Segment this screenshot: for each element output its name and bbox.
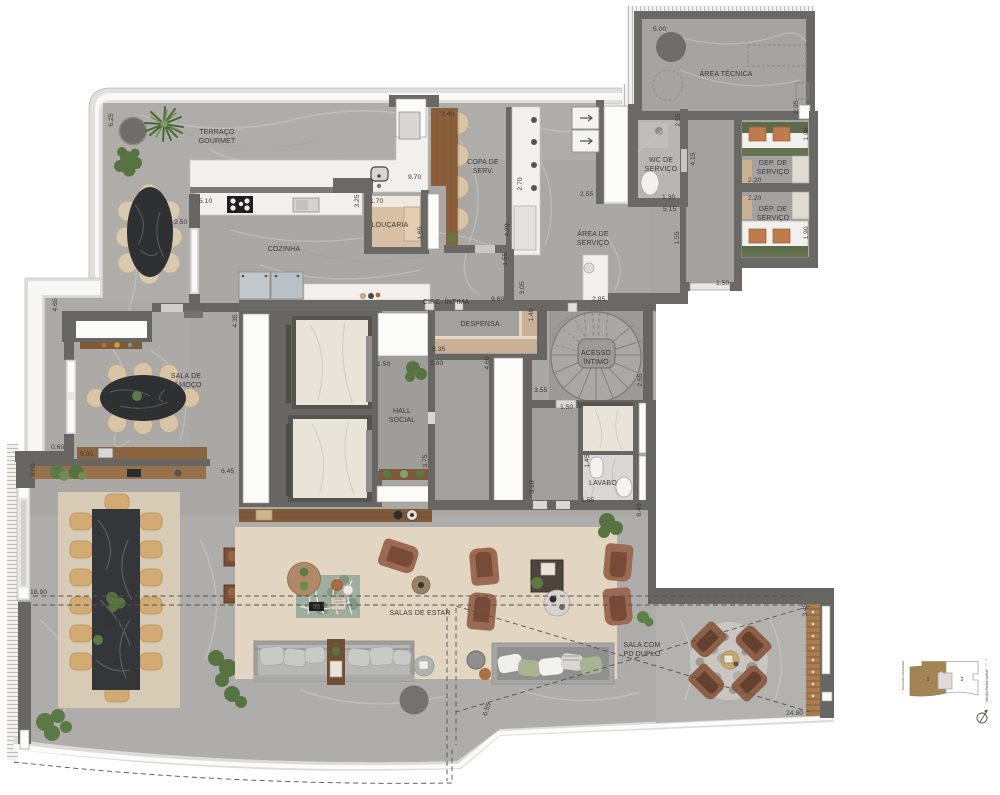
svg-text:GOURMET: GOURMET	[199, 138, 236, 145]
svg-text:3.45: 3.45	[802, 603, 809, 616]
svg-text:COZINHA: COZINHA	[268, 246, 301, 253]
svg-text:ALMOÇO: ALMOÇO	[170, 382, 202, 389]
svg-text:SALA COM: SALA COM	[624, 642, 661, 649]
svg-text:CIRC. ÍNTIMA: CIRC. ÍNTIMA	[423, 297, 470, 306]
svg-text:4.20: 4.20	[504, 223, 511, 236]
svg-text:1.65: 1.65	[417, 226, 424, 239]
svg-text:1.55: 1.55	[674, 231, 681, 244]
svg-text:3.35: 3.35	[432, 346, 445, 353]
svg-text:2.40: 2.40	[441, 111, 454, 118]
svg-text:4.35: 4.35	[232, 314, 239, 327]
svg-text:9.70: 9.70	[408, 174, 421, 181]
svg-text:2.95: 2.95	[793, 100, 800, 113]
svg-text:TERRAÇO: TERRAÇO	[199, 129, 235, 136]
svg-text:ÁREA DE: ÁREA DE	[577, 229, 609, 238]
svg-text:1.45: 1.45	[584, 454, 591, 467]
svg-text:1.40: 1.40	[528, 308, 535, 321]
svg-text:5.00: 5.00	[653, 26, 666, 33]
svg-text:1: 1	[926, 677, 929, 683]
svg-text:24.80: 24.80	[786, 710, 803, 717]
svg-text:18.90: 18.90	[30, 589, 47, 596]
svg-text:LOUÇARIA: LOUÇARIA	[372, 222, 409, 229]
svg-text:5.00: 5.00	[80, 451, 93, 458]
svg-text:2.70: 2.70	[517, 177, 524, 190]
svg-text:SERVIÇO: SERVIÇO	[645, 166, 678, 173]
svg-text:9.60: 9.60	[491, 296, 504, 303]
svg-text:4.65: 4.65	[52, 298, 59, 311]
svg-text:AVENIDA CIDADE JARDIM: AVENIDA CIDADE JARDIM	[985, 670, 989, 702]
svg-text:LAVABO: LAVABO	[589, 480, 617, 487]
svg-text:ÍNTIMO: ÍNTIMO	[583, 357, 609, 366]
svg-text:SERVIÇO: SERVIÇO	[757, 169, 790, 176]
svg-text:5.15: 5.15	[663, 206, 676, 213]
svg-text:3.75: 3.75	[422, 454, 429, 467]
svg-text:1.70: 1.70	[370, 198, 383, 205]
svg-text:4.15: 4.15	[690, 152, 697, 165]
svg-text:5.10: 5.10	[199, 198, 212, 205]
svg-text:2.20: 2.20	[748, 195, 761, 202]
svg-text:COPA DE: COPA DE	[467, 159, 499, 166]
svg-text:0.60: 0.60	[51, 444, 64, 451]
svg-text:6.25: 6.25	[108, 113, 115, 126]
svg-text:SERVIÇO: SERVIÇO	[757, 215, 790, 222]
svg-text:SERVIÇO: SERVIÇO	[577, 240, 610, 247]
svg-text:2: 2	[960, 677, 963, 683]
svg-text:DESPENSA: DESPENSA	[460, 321, 500, 328]
svg-text:2.50: 2.50	[174, 219, 187, 226]
svg-text:SALA DE: SALA DE	[171, 373, 201, 380]
svg-text:3.25: 3.25	[354, 194, 361, 207]
svg-text:DEP. DE: DEP. DE	[759, 206, 787, 213]
svg-text:9.00: 9.00	[30, 463, 37, 476]
svg-text:SOCIAL: SOCIAL	[389, 417, 416, 424]
svg-text:4.60: 4.60	[484, 356, 491, 369]
svg-text:JANTAR: JANTAR	[102, 627, 130, 634]
svg-text:SALAS DE ESTAR: SALAS DE ESTAR	[389, 610, 450, 617]
svg-text:1.55: 1.55	[502, 252, 509, 265]
svg-text:2.55: 2.55	[637, 373, 644, 386]
svg-text:2.20: 2.20	[748, 177, 761, 184]
svg-text:WC DE: WC DE	[649, 157, 673, 164]
svg-text:2.55: 2.55	[580, 191, 593, 198]
svg-text:3.05: 3.05	[519, 281, 526, 294]
svg-text:ACESSO: ACESSO	[581, 350, 611, 357]
svg-text:2.55: 2.55	[675, 113, 682, 126]
svg-text:6.40: 6.40	[636, 503, 643, 516]
svg-text:1.90: 1.90	[803, 127, 810, 140]
svg-text:ÁREA TÉCNICA: ÁREA TÉCNICA	[699, 69, 752, 78]
svg-text:3.55: 3.55	[534, 387, 547, 394]
svg-text:2.85: 2.85	[592, 296, 605, 303]
svg-text:1.80: 1.80	[430, 360, 443, 367]
svg-text:1.50: 1.50	[377, 361, 390, 368]
svg-text:1.50: 1.50	[716, 280, 729, 287]
svg-text:1.55: 1.55	[581, 497, 594, 504]
svg-text:DEP. DE: DEP. DE	[759, 160, 787, 167]
svg-text:6.45: 6.45	[221, 468, 234, 475]
svg-text:SALA DE: SALA DE	[101, 618, 131, 625]
svg-text:HALL: HALL	[393, 408, 411, 415]
svg-text:1.90: 1.90	[803, 226, 810, 239]
svg-text:3.10: 3.10	[529, 480, 536, 493]
svg-text:1.30: 1.30	[662, 194, 675, 201]
svg-text:1.50: 1.50	[560, 404, 573, 411]
svg-text:PD DUPLO: PD DUPLO	[624, 651, 661, 658]
svg-text:SERV.: SERV.	[473, 168, 494, 175]
